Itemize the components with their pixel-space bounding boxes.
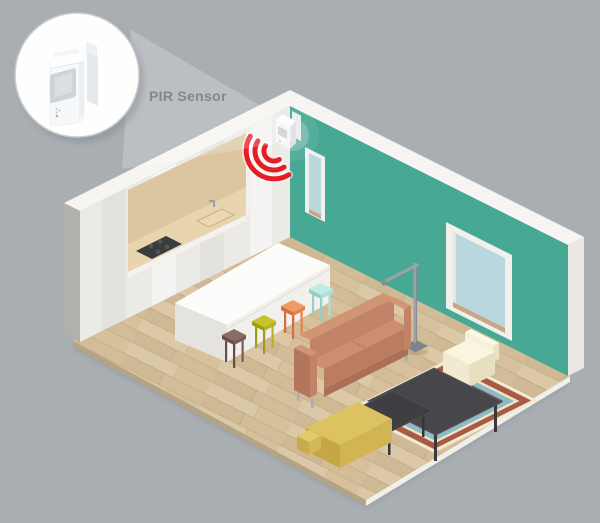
device-led [56, 115, 58, 117]
pir-sensor-label: PIR Sensor [149, 88, 227, 104]
lamp-head [381, 280, 386, 285]
isometric-room-scene: PIR Sensor [0, 0, 600, 523]
device-bracket [87, 52, 98, 106]
teal-wall-end-face [568, 237, 584, 376]
narrow-window [305, 147, 325, 222]
kitchen-wall-end-face [64, 203, 80, 342]
pir-sensor-illustration: PIR Sensor [0, 0, 600, 523]
